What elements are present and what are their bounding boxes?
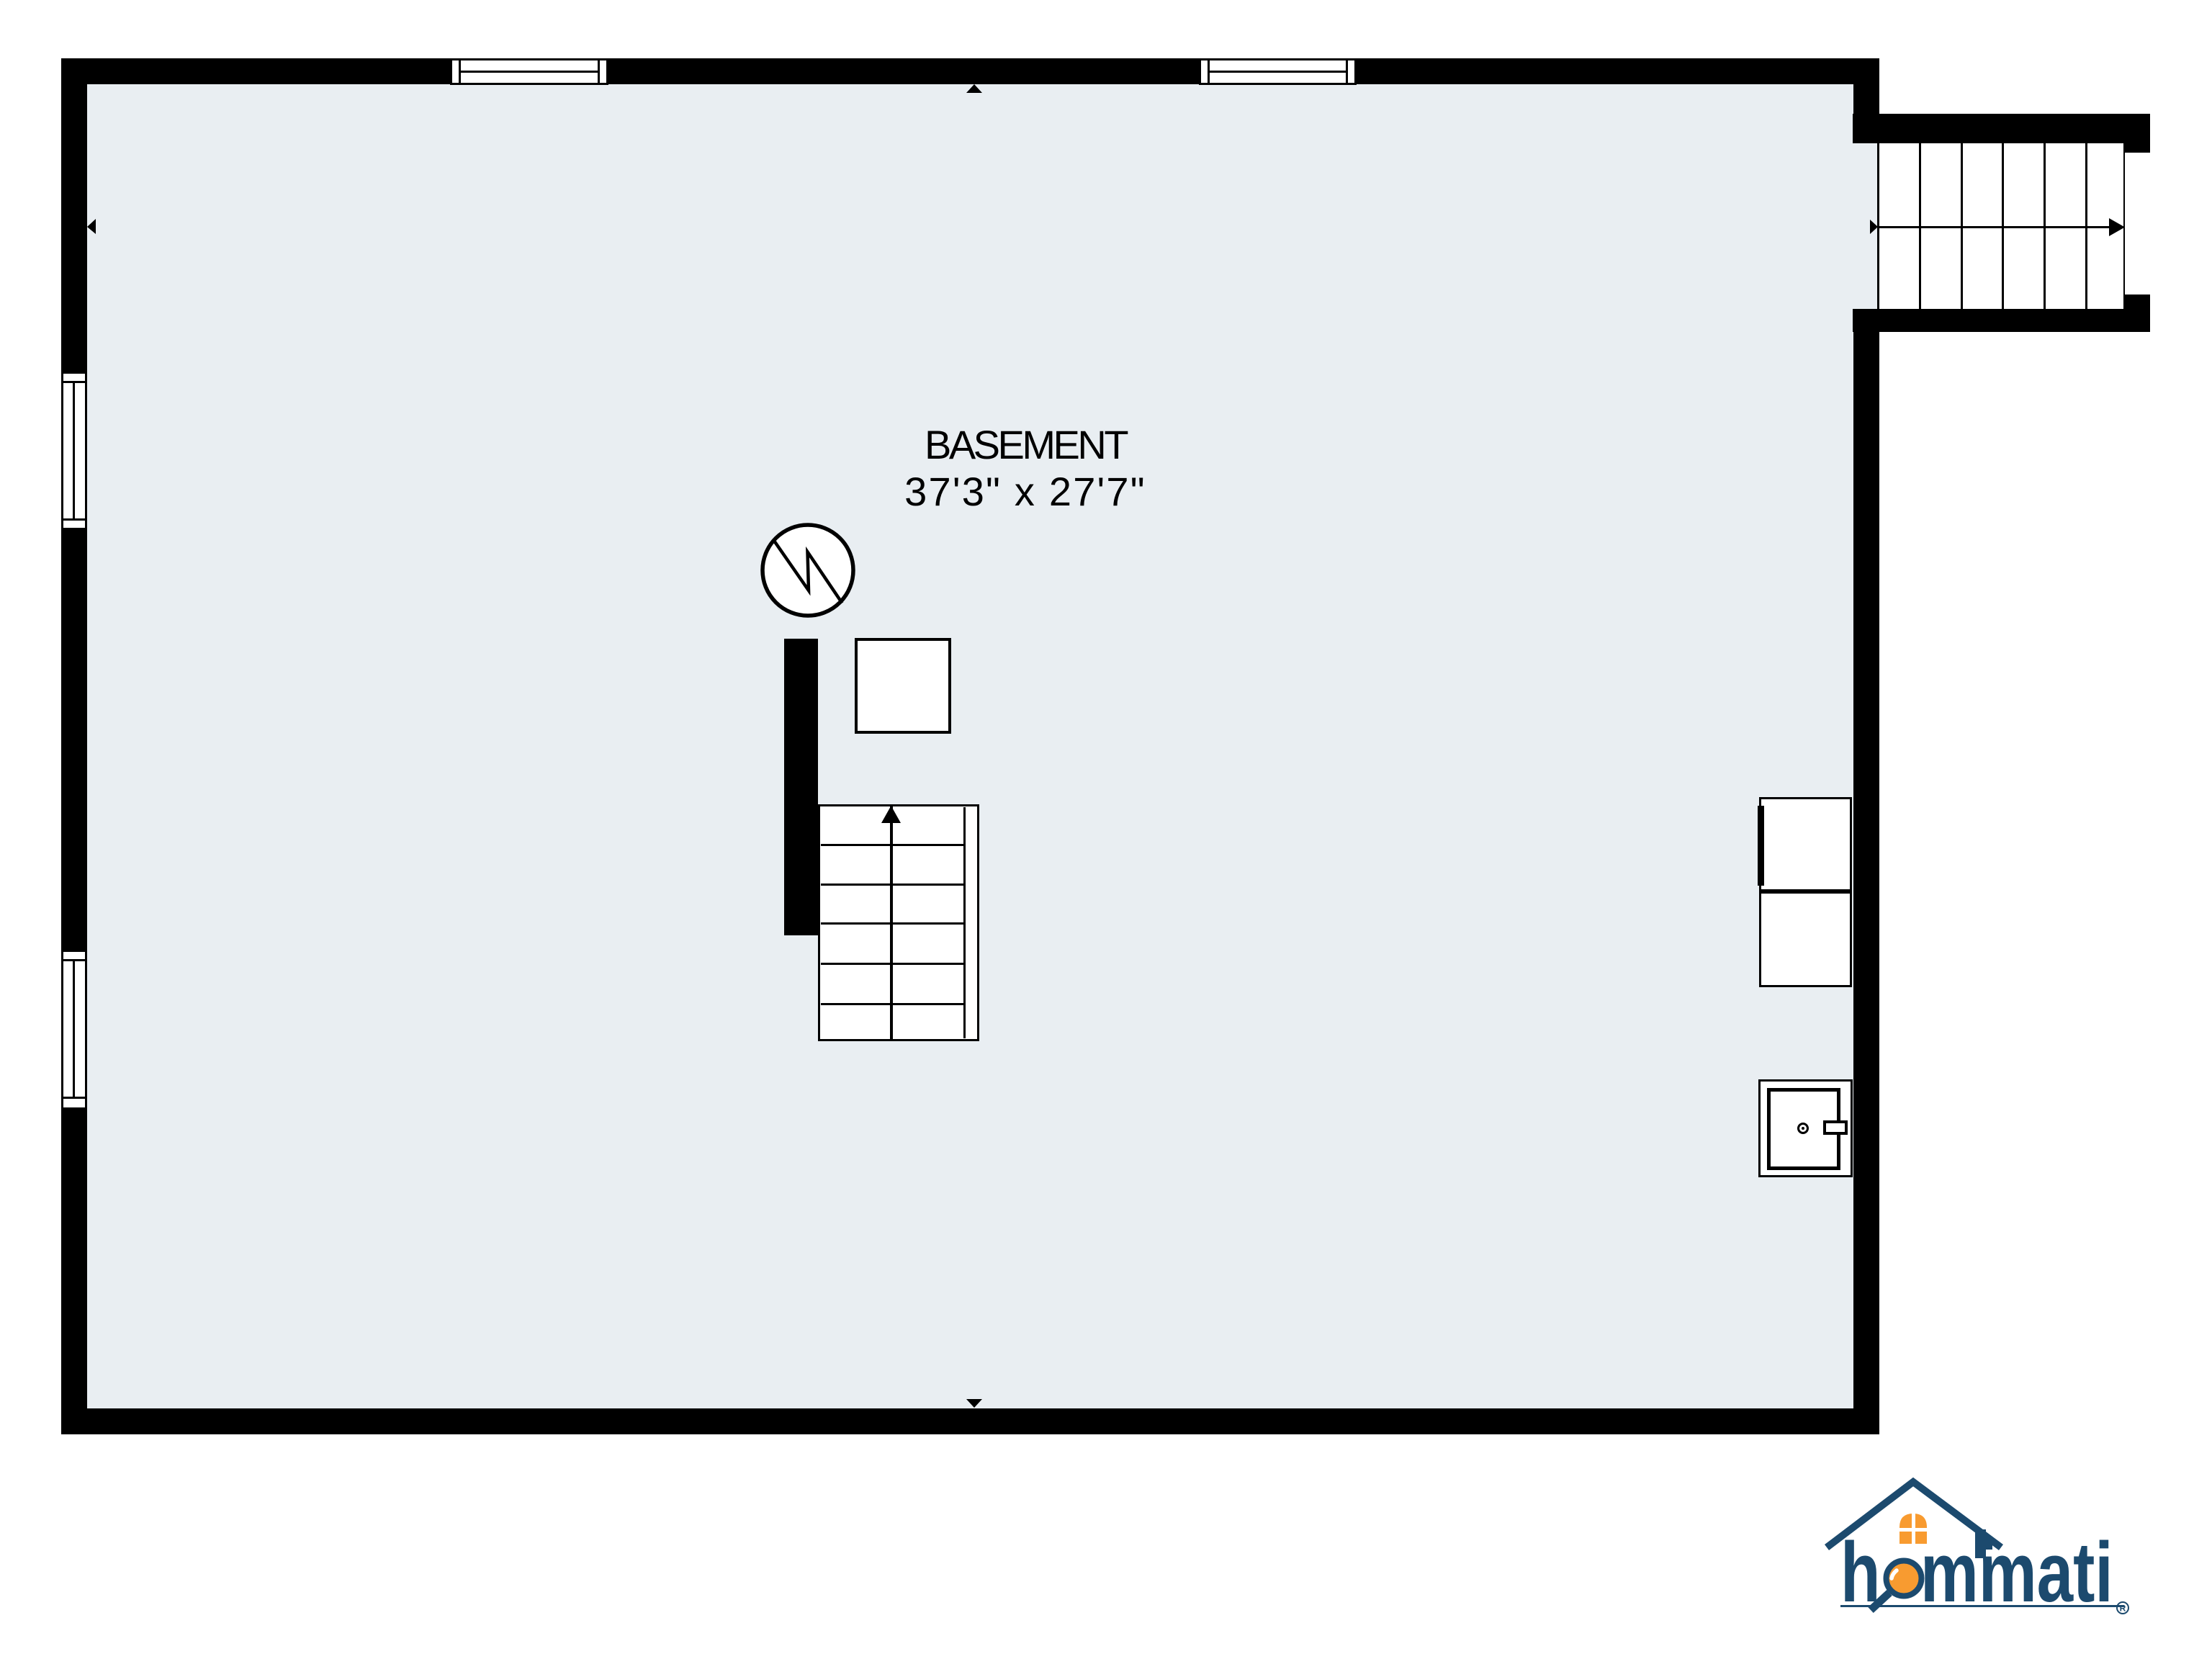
svg-text:R: R bbox=[2120, 1604, 2126, 1614]
